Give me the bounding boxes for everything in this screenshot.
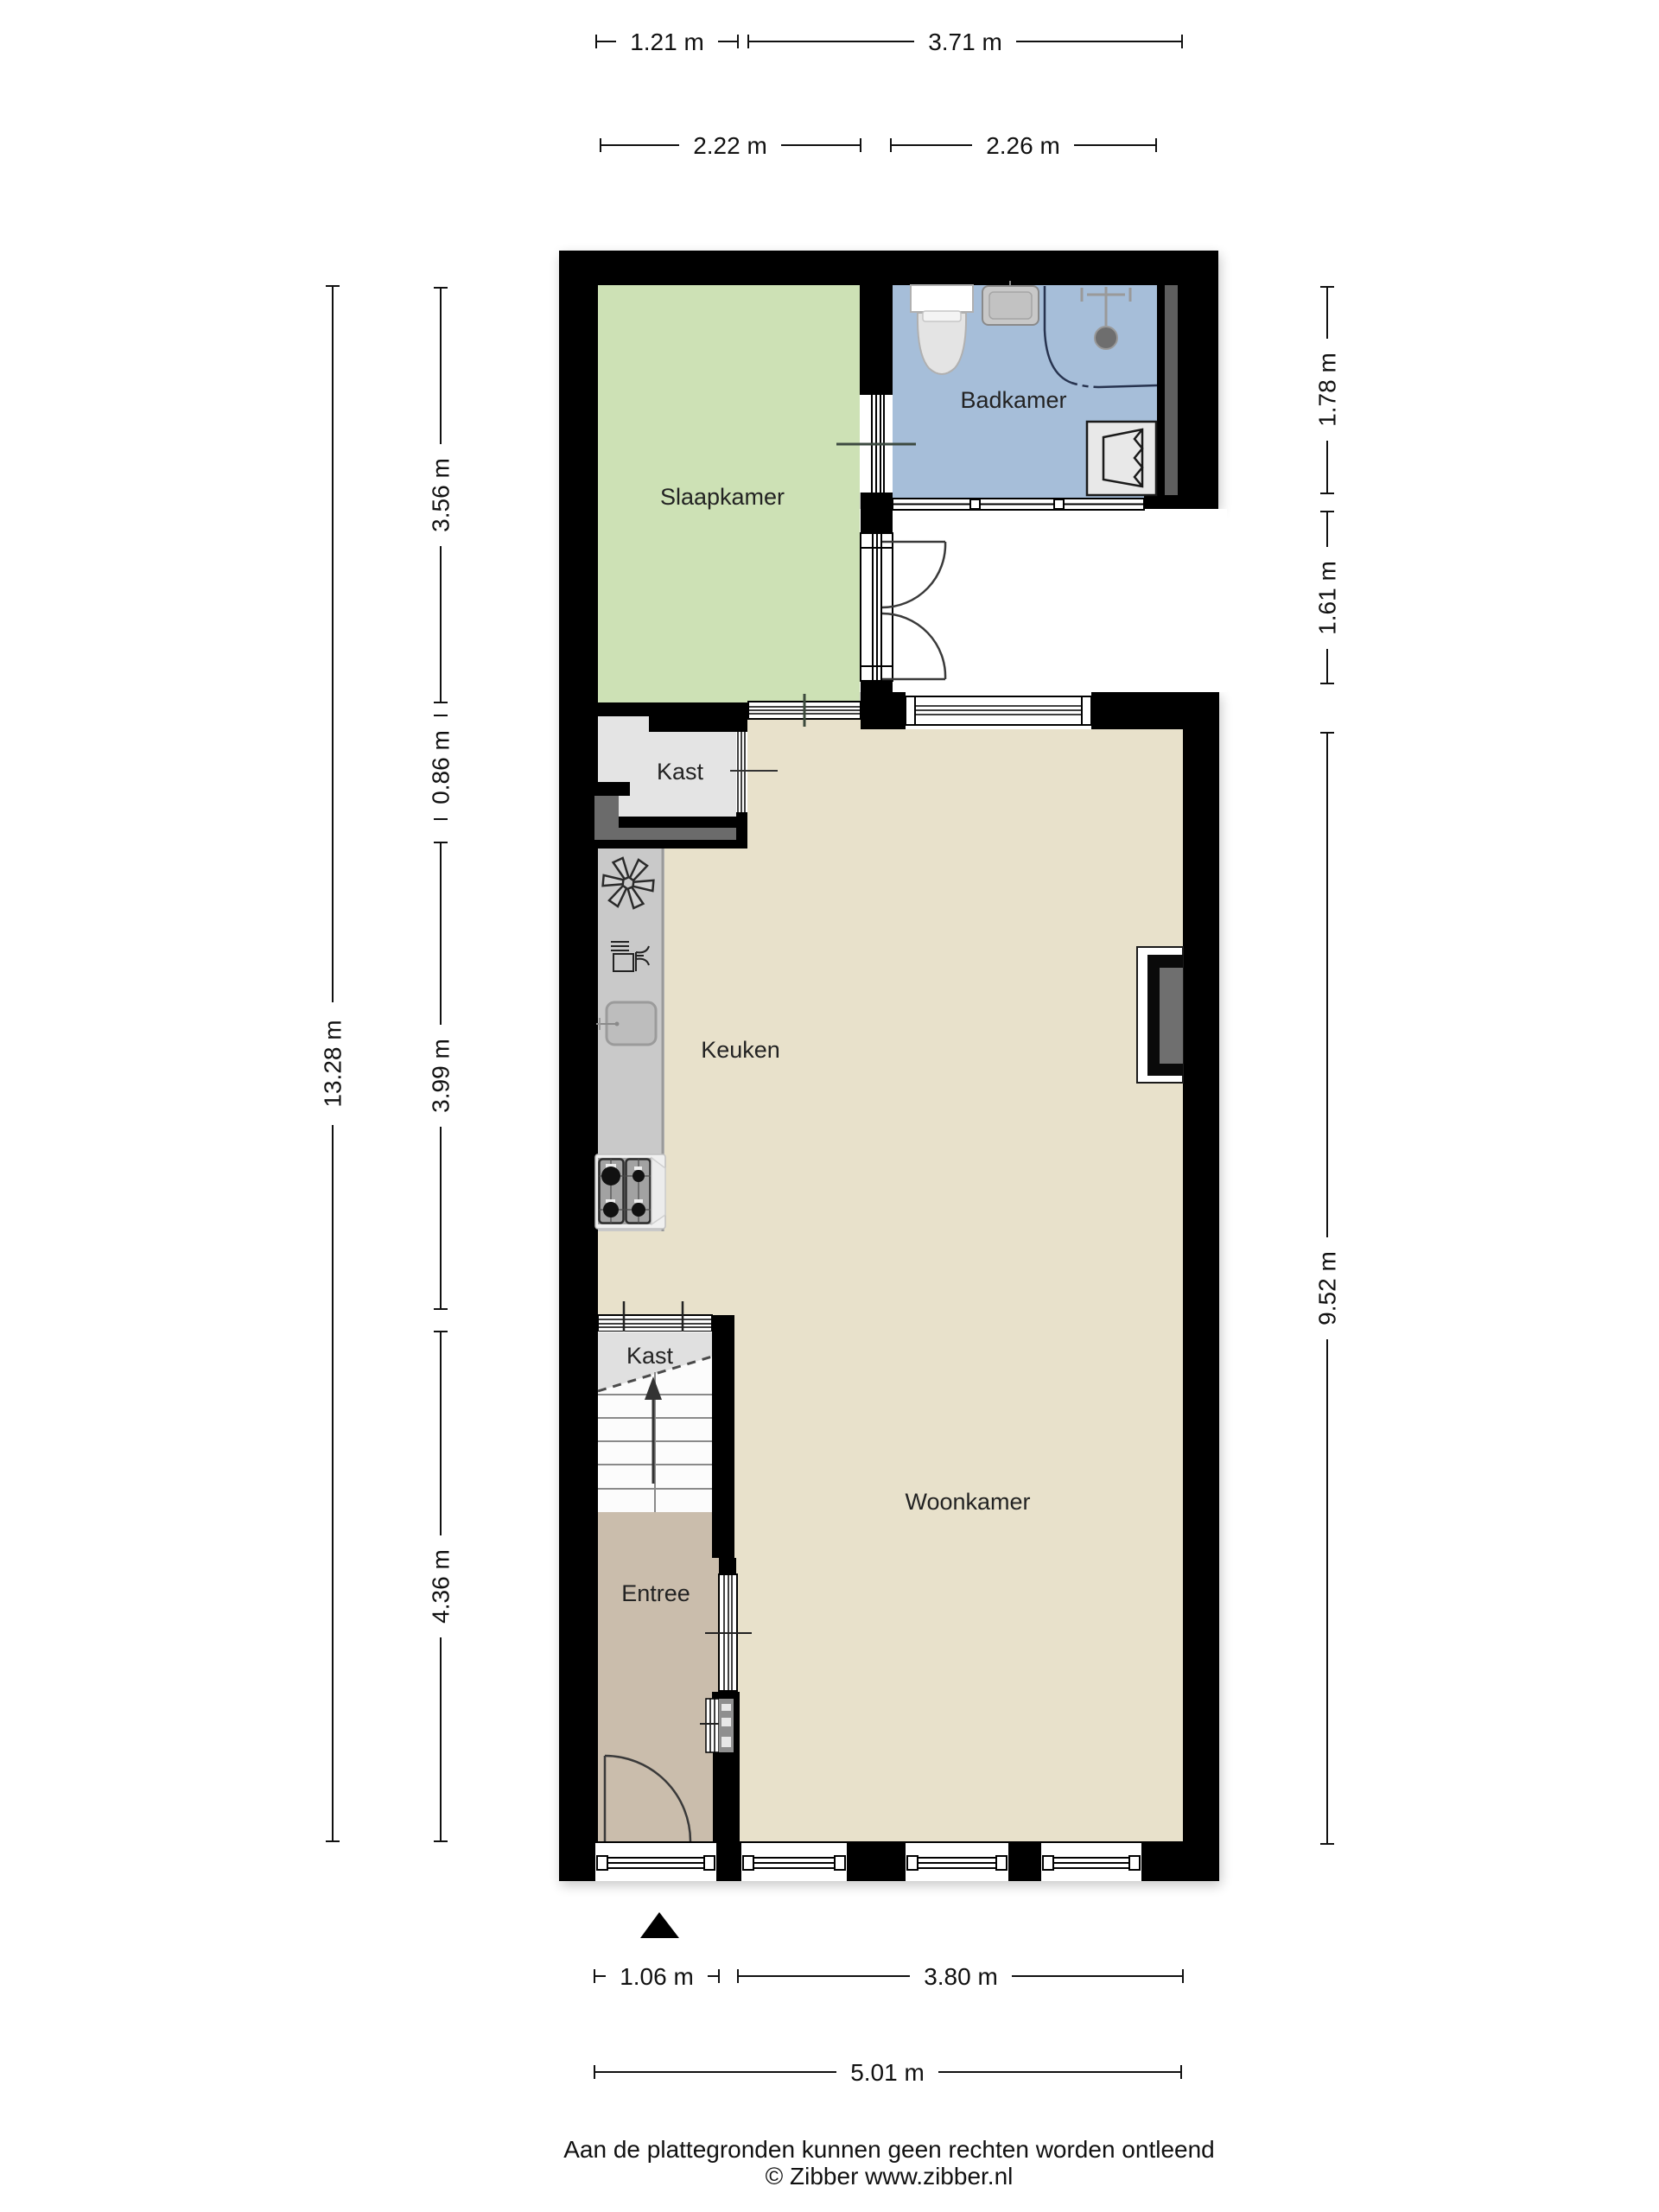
svg-text:1.61 m: 1.61 m [1314, 561, 1341, 635]
svg-text:9.52 m: 9.52 m [1314, 1251, 1341, 1325]
svg-text:© Zibber www.zibber.nl: © Zibber www.zibber.nl [766, 2163, 1014, 2190]
svg-text:1.06 m: 1.06 m [620, 1963, 694, 1990]
svg-text:3.99 m: 3.99 m [428, 1039, 454, 1113]
svg-text:2.26 m: 2.26 m [986, 132, 1060, 159]
svg-text:2.22 m: 2.22 m [693, 132, 767, 159]
svg-text:0.86 m: 0.86 m [428, 730, 454, 804]
svg-text:Slaapkamer: Slaapkamer [660, 484, 785, 510]
svg-text:3.56 m: 3.56 m [428, 458, 454, 532]
svg-text:5.01 m: 5.01 m [850, 2059, 925, 2086]
svg-text:4.36 m: 4.36 m [428, 1549, 454, 1624]
svg-text:1.78 m: 1.78 m [1314, 353, 1341, 427]
svg-text:Badkamer: Badkamer [960, 387, 1066, 413]
svg-text:Kast: Kast [657, 759, 704, 785]
svg-text:Aan de plattegronden kunnen ge: Aan de plattegronden kunnen geen rechten… [563, 2136, 1214, 2163]
svg-text:Entree: Entree [621, 1580, 690, 1606]
svg-text:3.80 m: 3.80 m [924, 1963, 998, 1990]
svg-text:1.21 m: 1.21 m [630, 29, 704, 55]
svg-text:Keuken: Keuken [701, 1037, 780, 1063]
svg-text:13.28 m: 13.28 m [320, 1020, 346, 1107]
svg-text:Woonkamer: Woonkamer [905, 1489, 1030, 1515]
svg-text:Kast: Kast [626, 1343, 674, 1369]
svg-text:3.71 m: 3.71 m [928, 29, 1002, 55]
